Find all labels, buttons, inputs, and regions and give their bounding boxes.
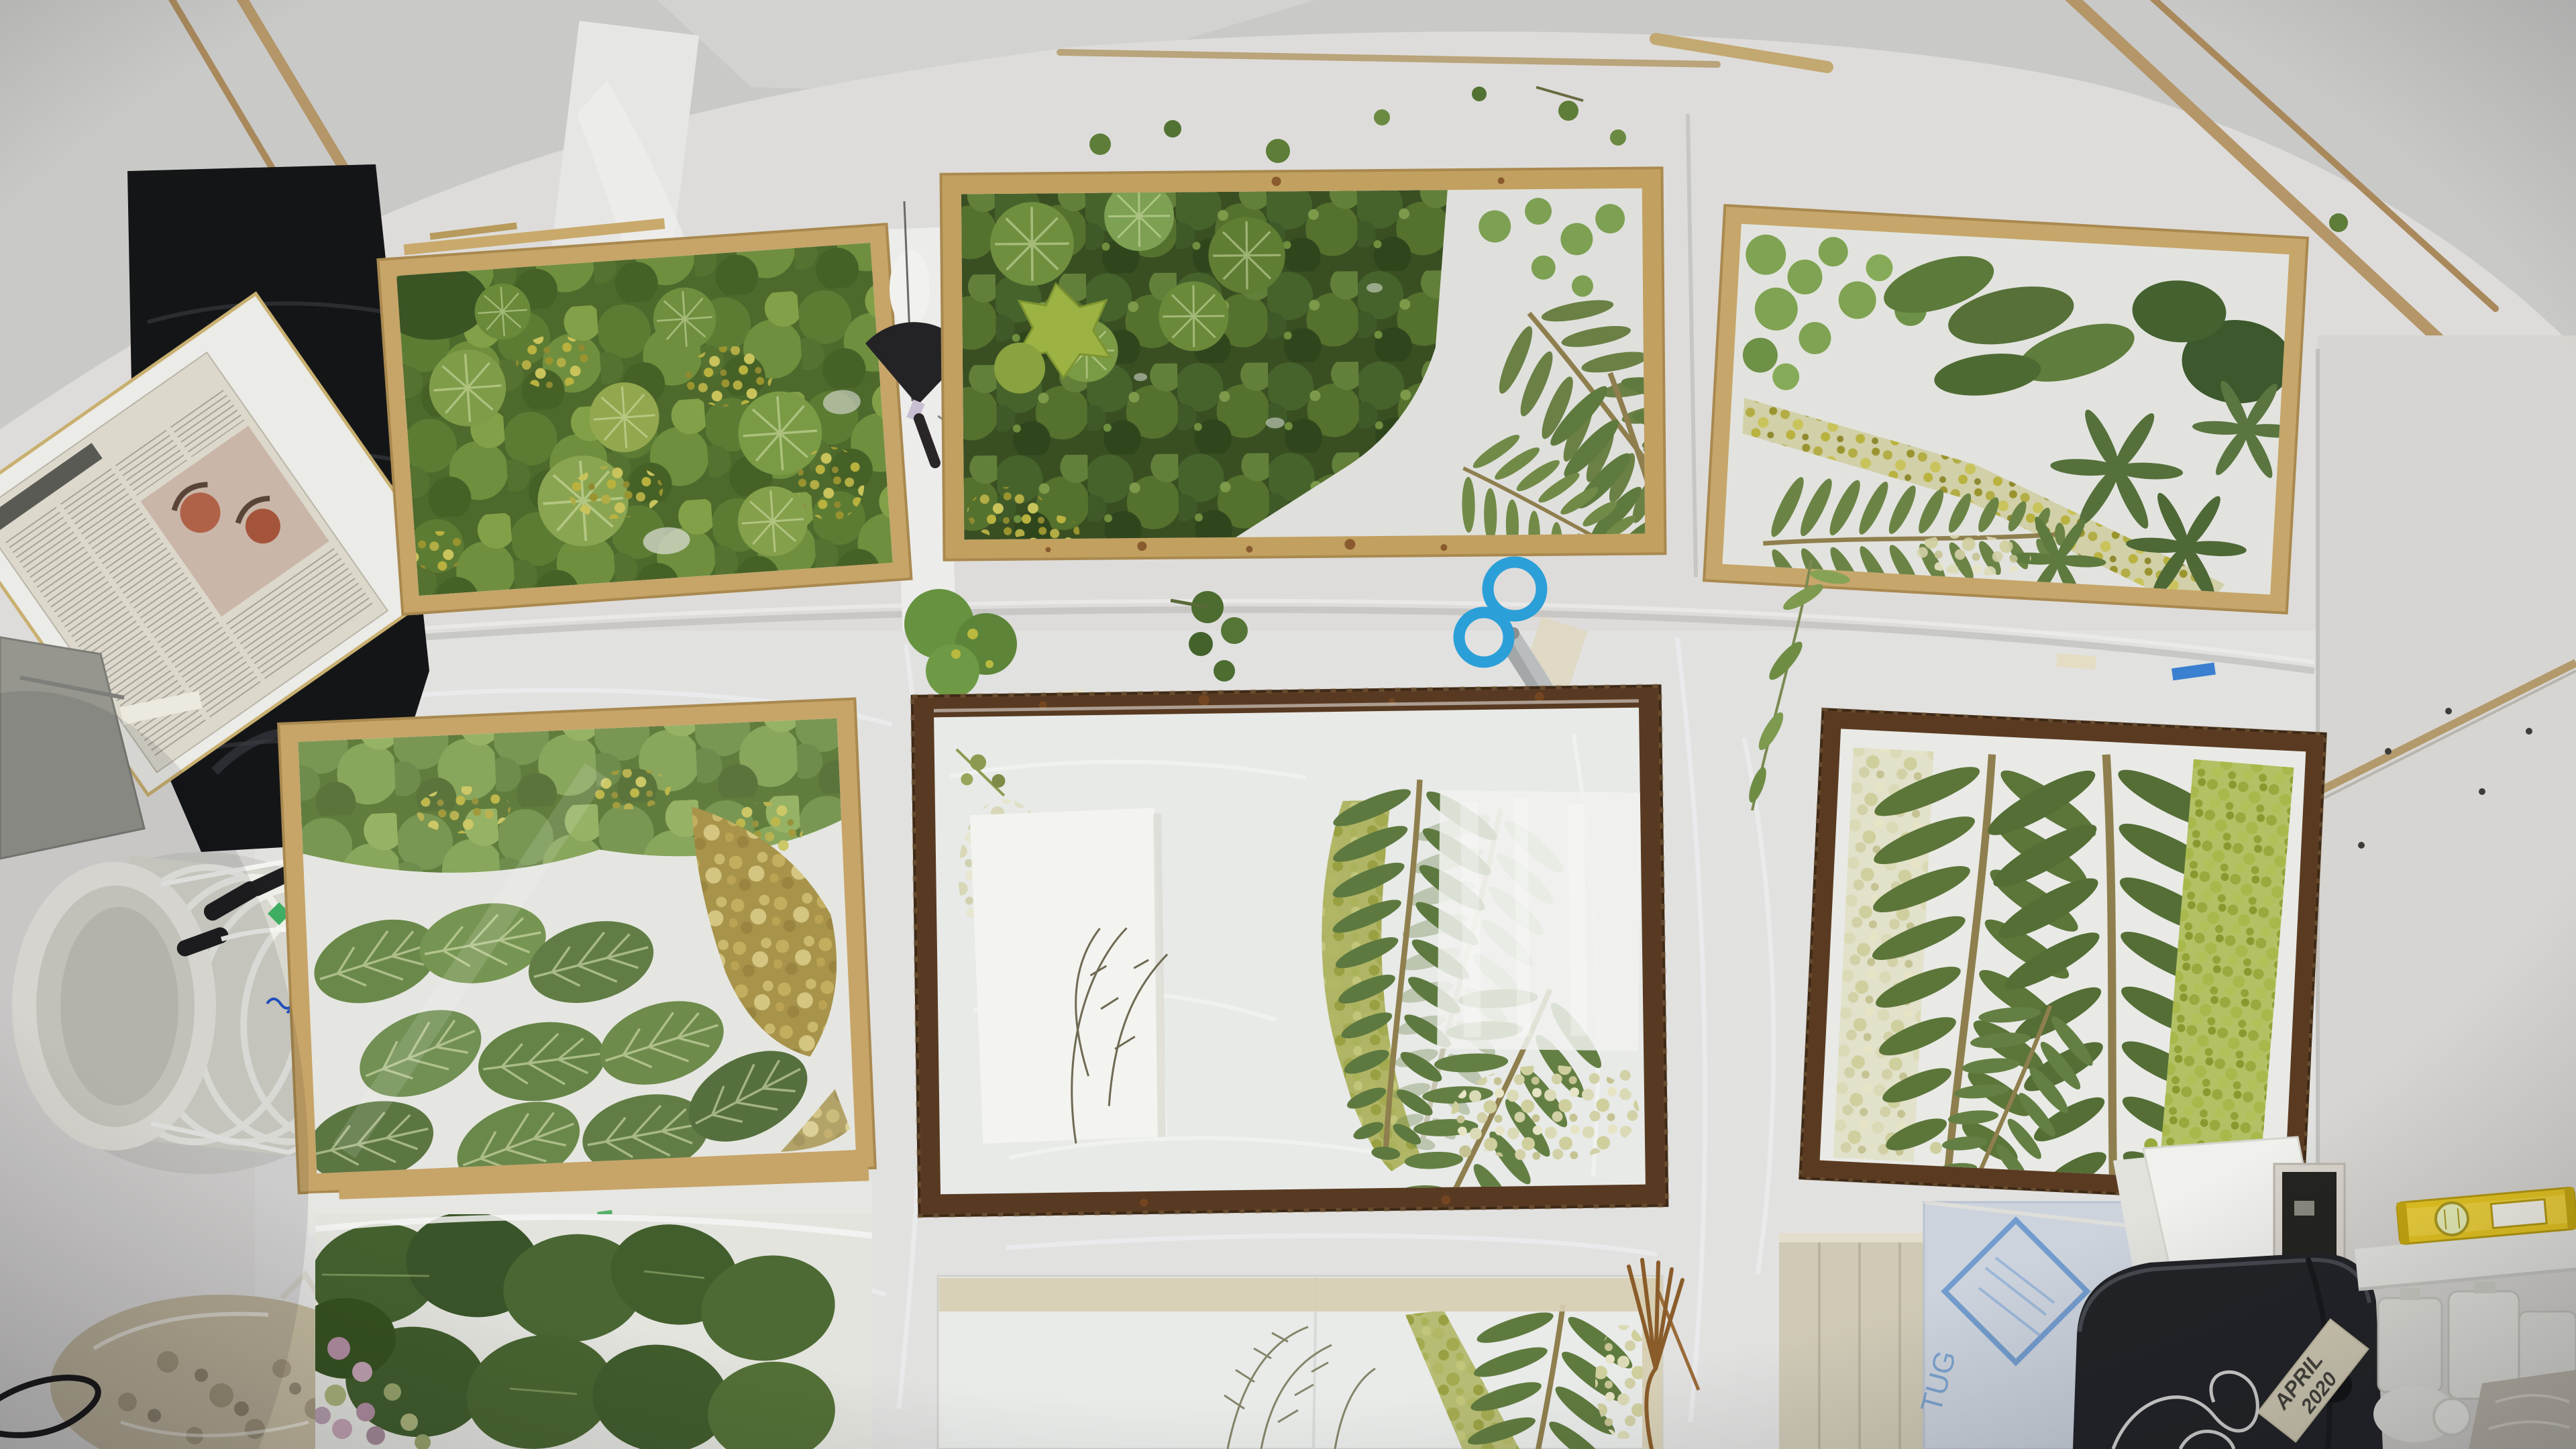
photo-vignette (0, 0, 2576, 1449)
studio-photo: TUG APRIL 2020 (0, 0, 2576, 1449)
studio-photo-svg: TUG APRIL 2020 (0, 0, 2576, 1449)
